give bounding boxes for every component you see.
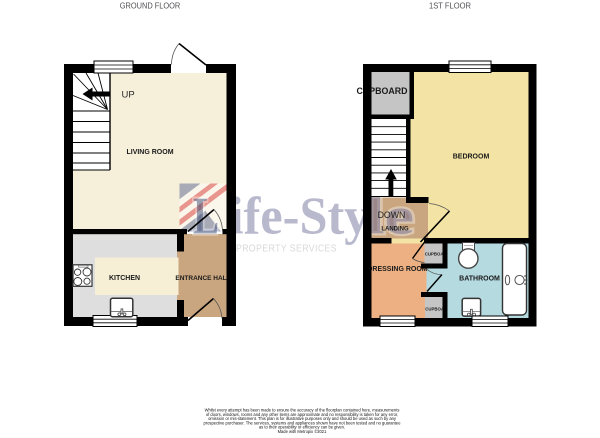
svg-text:UP: UP	[122, 90, 135, 101]
svg-text:PROPERTY SERVICES: PROPERTY SERVICES	[236, 244, 337, 255]
svg-text:1ST FLOOR: 1ST FLOOR	[429, 1, 471, 11]
svg-text:ENTRANCE HALL: ENTRANCE HALL	[175, 275, 230, 282]
svg-text:BATHROOM: BATHROOM	[459, 276, 500, 283]
svg-text:LANDING: LANDING	[381, 227, 409, 233]
svg-text:DRESSING ROOM: DRESSING ROOM	[367, 266, 427, 273]
svg-text:BEDROOM: BEDROOM	[453, 154, 490, 161]
svg-text:LIVING ROOM: LIVING ROOM	[126, 149, 173, 156]
svg-text:GROUND FLOOR: GROUND FLOOR	[120, 1, 181, 11]
svg-text:KITCHEN: KITCHEN	[109, 275, 140, 282]
svg-text:ife-Sty: ife-Sty	[230, 188, 370, 246]
svg-text:DOWN: DOWN	[378, 210, 406, 220]
svg-text:Made with Metropix ©2021: Made with Metropix ©2021	[278, 429, 327, 434]
